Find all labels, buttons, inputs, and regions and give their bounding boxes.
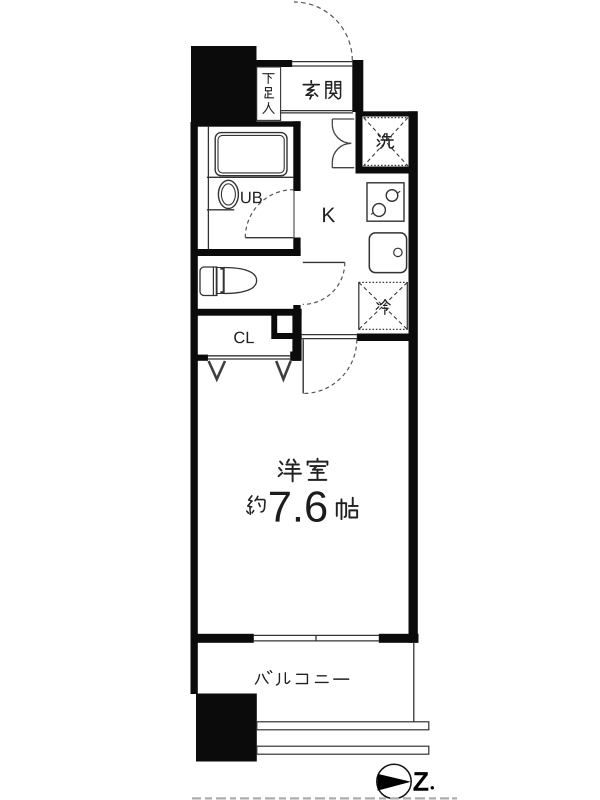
svg-text:Z: Z: [413, 767, 430, 797]
svg-text:CL: CL: [233, 329, 254, 347]
svg-text:7.6: 7.6: [268, 484, 329, 532]
svg-text:K: K: [321, 204, 335, 227]
svg-text:UB: UB: [240, 189, 263, 207]
